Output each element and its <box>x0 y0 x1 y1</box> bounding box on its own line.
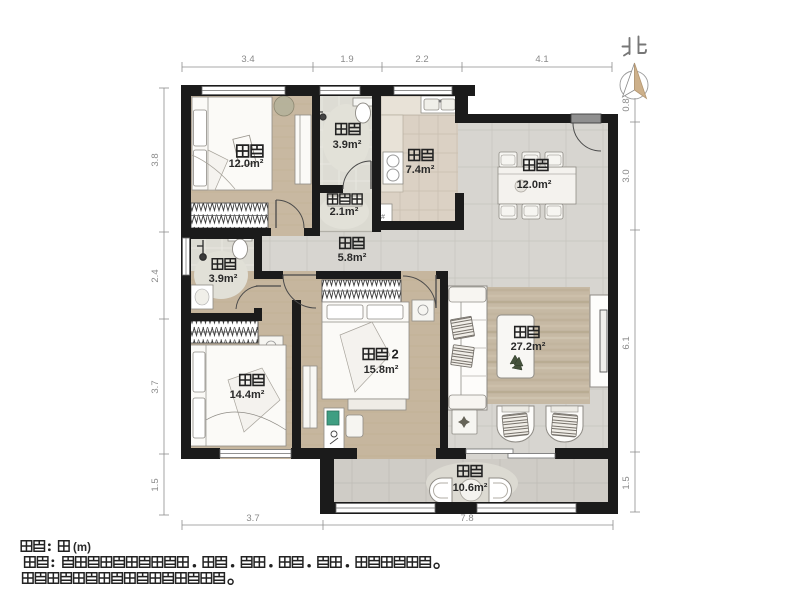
svg-text:2: 2 <box>391 347 398 362</box>
svg-text:3.8: 3.8 <box>150 153 161 166</box>
svg-text:27.2m²: 27.2m² <box>511 341 546 353</box>
svg-text:2.1m²: 2.1m² <box>330 206 359 218</box>
svg-text:1.5: 1.5 <box>150 478 161 491</box>
svg-text:7.4m²: 7.4m² <box>406 164 435 176</box>
svg-text:3.7: 3.7 <box>246 513 259 524</box>
svg-text:14.4m²: 14.4m² <box>230 389 265 401</box>
svg-text:0.8: 0.8 <box>621 98 632 111</box>
svg-text:1.5: 1.5 <box>621 476 632 489</box>
svg-text:(m): (m) <box>73 542 91 554</box>
svg-text:3.9m²: 3.9m² <box>333 139 362 151</box>
svg-text:3.0: 3.0 <box>621 169 632 182</box>
svg-text:#: # <box>381 214 385 221</box>
svg-text:15.8m²: 15.8m² <box>364 364 399 376</box>
svg-text:3.9m²: 3.9m² <box>209 273 238 285</box>
svg-text:5.8m²: 5.8m² <box>338 252 367 264</box>
svg-text:6.1: 6.1 <box>621 336 632 349</box>
svg-text:10.6m²: 10.6m² <box>453 482 488 494</box>
svg-text:3.7: 3.7 <box>150 380 161 393</box>
svg-text:2.2: 2.2 <box>415 54 428 65</box>
svg-text:12.0m²: 12.0m² <box>517 179 552 191</box>
svg-text:7.8: 7.8 <box>460 513 473 524</box>
svg-text:2.4: 2.4 <box>150 269 161 282</box>
svg-text:12.0m²: 12.0m² <box>229 158 264 170</box>
svg-text:1.9: 1.9 <box>340 54 353 65</box>
svg-text:4.1: 4.1 <box>535 54 548 65</box>
svg-text:3.4: 3.4 <box>241 54 254 65</box>
